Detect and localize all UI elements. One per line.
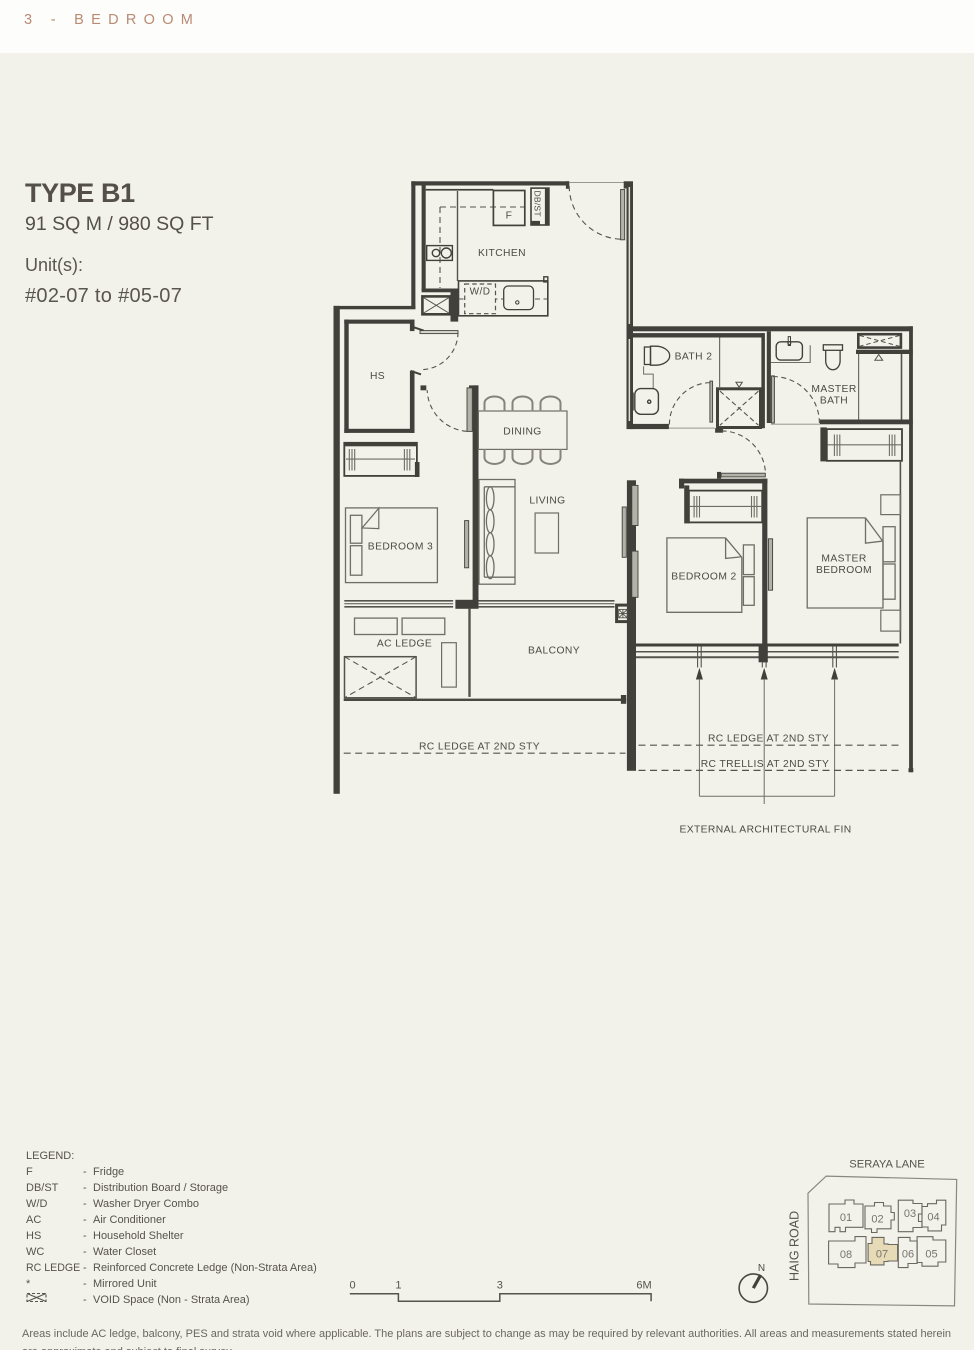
svg-text:HS: HS [370, 371, 385, 382]
svg-text:MASTER: MASTER [811, 384, 856, 395]
svg-text:03: 03 [904, 1208, 916, 1220]
svg-text:01: 01 [840, 1212, 852, 1224]
svg-text:6M: 6M [636, 1280, 651, 1292]
svg-text:0: 0 [349, 1280, 355, 1292]
svg-text:DB/ST: DB/ST [533, 191, 543, 218]
svg-text:HAIG ROAD: HAIG ROAD [788, 1211, 802, 1281]
svg-text:AC LEDGE: AC LEDGE [377, 639, 432, 650]
svg-text:RC LEDGE AT 2ND STY: RC LEDGE AT 2ND STY [419, 742, 540, 753]
svg-text:BEDROOM: BEDROOM [816, 565, 872, 576]
svg-text:04: 04 [927, 1212, 939, 1224]
svg-text:SERAYA LANE: SERAYA LANE [849, 1159, 924, 1171]
svg-text:02: 02 [871, 1214, 883, 1226]
svg-text:06: 06 [902, 1249, 914, 1261]
svg-text:BEDROOM 3: BEDROOM 3 [368, 542, 433, 553]
svg-text:08: 08 [840, 1249, 852, 1261]
svg-text:N: N [758, 1263, 765, 1274]
svg-text:W/D: W/D [470, 287, 491, 298]
svg-text:RC LEDGE AT 2ND STY: RC LEDGE AT 2ND STY [708, 734, 829, 745]
svg-text:EXTERNAL ARCHITECTURAL FIN: EXTERNAL ARCHITECTURAL FIN [679, 825, 851, 836]
svg-text:MASTER: MASTER [821, 554, 866, 565]
svg-text:BATH 2: BATH 2 [675, 352, 713, 363]
svg-text:RC TRELLIS AT 2ND STY: RC TRELLIS AT 2ND STY [701, 759, 830, 770]
svg-text:1: 1 [395, 1280, 401, 1292]
svg-text:KITCHEN: KITCHEN [478, 248, 526, 259]
svg-text:BATH: BATH [820, 396, 848, 407]
svg-text:DINING: DINING [503, 427, 541, 438]
svg-text:07: 07 [876, 1249, 888, 1261]
svg-text:05: 05 [925, 1249, 937, 1261]
svg-text:F: F [506, 211, 513, 222]
svg-text:BEDROOM 2: BEDROOM 2 [671, 572, 736, 583]
svg-text:3: 3 [497, 1280, 503, 1292]
svg-text:LIVING: LIVING [529, 496, 565, 507]
svg-text:BALCONY: BALCONY [528, 646, 580, 657]
